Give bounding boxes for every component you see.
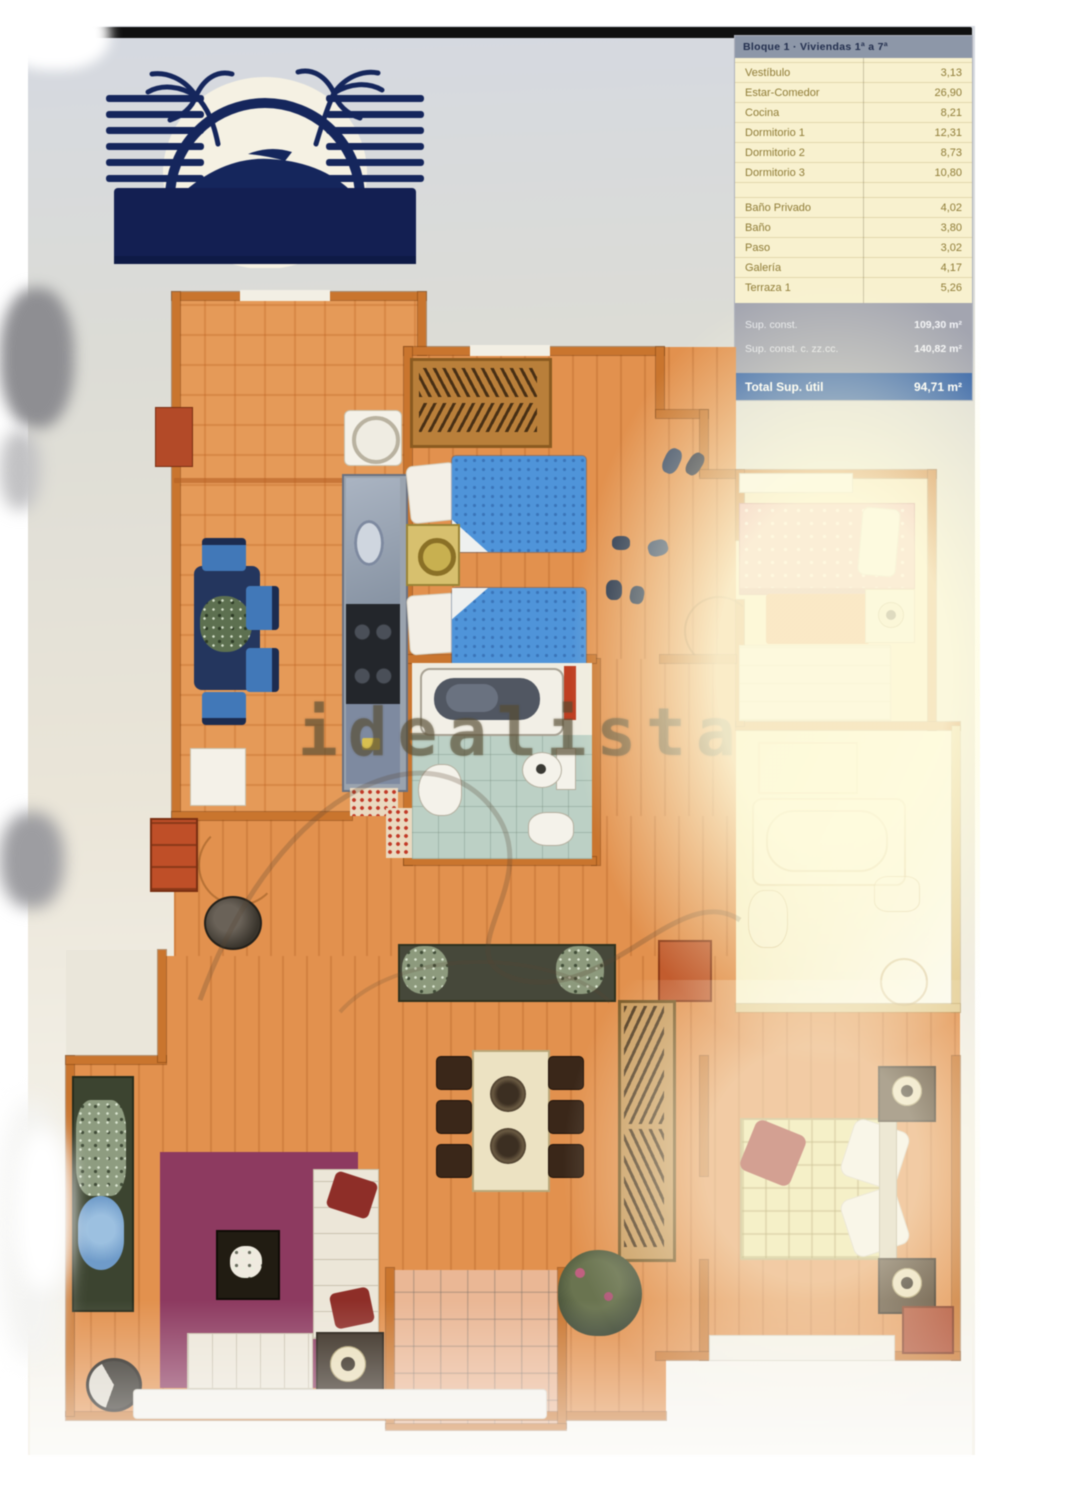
photo-edge-smudge bbox=[0, 0, 110, 70]
table-row: Dormitorio 112,31 bbox=[735, 122, 972, 142]
table-row: Dormitorio 310,80 bbox=[735, 162, 972, 182]
area-table-header: Bloque 1 · Viviendas 1ª a 7ª bbox=[735, 36, 972, 58]
room-area: 8,73 bbox=[941, 147, 962, 159]
nightstand-lamp-icon bbox=[418, 538, 456, 576]
photo-edge-smudge bbox=[0, 812, 64, 908]
nightstand-lamp-icon bbox=[878, 602, 904, 628]
table-row: Baño3,80 bbox=[735, 217, 972, 237]
plant-icon bbox=[76, 1100, 126, 1196]
room-label: Vestíbulo bbox=[745, 67, 790, 79]
window-sill bbox=[740, 474, 852, 492]
room-label: Dormitorio 3 bbox=[745, 167, 805, 179]
wardrobe bbox=[410, 358, 552, 448]
room-label: Paso bbox=[745, 242, 770, 254]
nightstand-lamp-icon bbox=[892, 1076, 922, 1106]
summary-value: 140,82 m² bbox=[914, 343, 962, 355]
table-row: Paso3,02 bbox=[735, 237, 972, 257]
headboard bbox=[880, 1116, 896, 1258]
table-centerpiece-icon bbox=[490, 1076, 526, 1112]
wall bbox=[656, 347, 664, 417]
dining-chair bbox=[436, 1144, 472, 1178]
dining-chair bbox=[548, 1144, 584, 1178]
single-bed bbox=[452, 456, 586, 552]
table-row: Dormitorio 28,73 bbox=[735, 142, 972, 162]
room-label: Baño bbox=[745, 222, 771, 234]
wardrobe-hangers-icon bbox=[419, 403, 537, 432]
summary-label: Sup. const. bbox=[745, 319, 798, 331]
kitchen-sink-icon bbox=[354, 520, 384, 566]
wall bbox=[700, 1056, 708, 1176]
table-row: Galería4,17 bbox=[735, 257, 972, 277]
room-label: Baño Privado bbox=[745, 202, 811, 214]
plant-flower-icon bbox=[604, 1292, 613, 1301]
dining-chair bbox=[436, 1100, 472, 1134]
table-centerpiece-icon bbox=[490, 1128, 526, 1164]
room-area: 12,31 bbox=[934, 127, 962, 139]
terrace-chair bbox=[246, 586, 279, 630]
dining-chair bbox=[436, 1056, 472, 1090]
bedroom-rug bbox=[766, 594, 870, 644]
wardrobe-hangers-icon bbox=[419, 368, 537, 397]
terrace-basin-icon bbox=[352, 416, 400, 464]
table-lamp-icon bbox=[330, 1346, 366, 1382]
table-row: Vestíbulo3,13 bbox=[735, 62, 972, 82]
dining-table bbox=[472, 1050, 550, 1192]
table-row: Terraza 15,26 bbox=[735, 277, 972, 297]
area-table-body: Vestíbulo3,13 Estar-Comedor26,90 Cocina8… bbox=[735, 58, 972, 303]
flower-centerpiece-icon bbox=[230, 1246, 262, 1278]
area-table-total: Total Sup. útil 94,71 m² bbox=[735, 373, 972, 400]
room-area: 4,02 bbox=[941, 202, 962, 214]
window bbox=[240, 290, 330, 301]
wall bbox=[700, 1260, 708, 1360]
planter-box bbox=[156, 408, 192, 466]
seaside-development-logo bbox=[100, 38, 430, 268]
surface-area-table: Bloque 1 · Viviendas 1ª a 7ª Vestíbulo3,… bbox=[735, 36, 972, 400]
window bbox=[470, 345, 550, 356]
room-area: 8,21 bbox=[941, 107, 962, 119]
room-area: 3,02 bbox=[941, 242, 962, 254]
wall bbox=[66, 1056, 166, 1064]
window-sill bbox=[134, 1390, 546, 1418]
total-label: Total Sup. útil bbox=[745, 380, 823, 394]
room-area: 3,13 bbox=[941, 67, 962, 79]
room-label: Dormitorio 2 bbox=[745, 147, 805, 159]
summary-row: Sup. const. c. zz.cc.140,82 m² bbox=[735, 337, 972, 361]
plant-flower-icon bbox=[575, 1268, 585, 1278]
room-area: 10,80 bbox=[934, 167, 962, 179]
room-area: 26,90 bbox=[934, 87, 962, 99]
table-row: Estar-Comedor26,90 bbox=[735, 82, 972, 102]
summary-label: Sup. const. c. zz.cc. bbox=[745, 343, 838, 355]
floorplan-photo-page: Bloque 1 · Viviendas 1ª a 7ª Vestíbulo3,… bbox=[0, 0, 1065, 1500]
table-row: Cocina8,21 bbox=[735, 102, 972, 122]
room-label: Cocina bbox=[745, 107, 779, 119]
room-label: Terraza 1 bbox=[745, 282, 791, 294]
area-table-summary: Sup. const.109,30 m² Sup. const. c. zz.c… bbox=[735, 303, 972, 373]
room-label: Dormitorio 1 bbox=[745, 127, 805, 139]
room-label: Estar-Comedor bbox=[745, 87, 820, 99]
stove-icon bbox=[346, 604, 400, 704]
washbasin-faint-icon bbox=[874, 876, 920, 912]
table-spacer bbox=[735, 182, 972, 197]
table-row: Baño Privado4,02 bbox=[735, 197, 972, 217]
summary-value: 109,30 m² bbox=[914, 319, 962, 331]
bench-sofa bbox=[188, 1334, 312, 1388]
logo-name-block bbox=[114, 188, 416, 262]
wall bbox=[952, 726, 960, 1012]
washer-drum-icon bbox=[880, 958, 928, 1006]
idealista-watermark: idealista bbox=[298, 694, 746, 771]
blue-bowl-icon bbox=[78, 1196, 124, 1270]
photo-edge-smudge bbox=[0, 288, 74, 428]
logo-base-bar bbox=[114, 256, 416, 264]
room-area: 5,26 bbox=[941, 282, 962, 294]
slippers-icon bbox=[606, 580, 622, 600]
photo-edge-smudge bbox=[0, 430, 40, 510]
wall bbox=[928, 470, 936, 730]
bed-pillow bbox=[857, 506, 901, 577]
nightstand-lamp-icon bbox=[892, 1268, 922, 1298]
wardrobe-hangers-icon bbox=[624, 1129, 664, 1247]
slippers-icon bbox=[612, 536, 630, 550]
terrace-chair bbox=[246, 648, 279, 692]
dining-chair bbox=[548, 1100, 584, 1134]
hall-wardrobe bbox=[618, 1000, 676, 1262]
large-plant-icon bbox=[558, 1250, 642, 1336]
terrace-chair bbox=[202, 538, 246, 571]
photo-edge-smudge bbox=[14, 1130, 70, 1290]
terrace-plant-icon bbox=[200, 596, 252, 652]
photo-blur-layer: Bloque 1 · Viviendas 1ª a 7ª Vestíbulo3,… bbox=[0, 0, 1065, 1500]
wall bbox=[386, 1424, 566, 1430]
wall bbox=[418, 292, 426, 355]
table-column-divider bbox=[863, 58, 864, 303]
total-value: 94,71 m² bbox=[914, 380, 962, 394]
dining-chair bbox=[548, 1056, 584, 1090]
summary-row: Sup. const.109,30 m² bbox=[735, 313, 972, 337]
room-area: 4,17 bbox=[941, 262, 962, 274]
room-label: Galería bbox=[745, 262, 781, 274]
window-sill bbox=[710, 1336, 894, 1360]
room-area: 3,80 bbox=[941, 222, 962, 234]
ottoman bbox=[902, 1306, 954, 1354]
